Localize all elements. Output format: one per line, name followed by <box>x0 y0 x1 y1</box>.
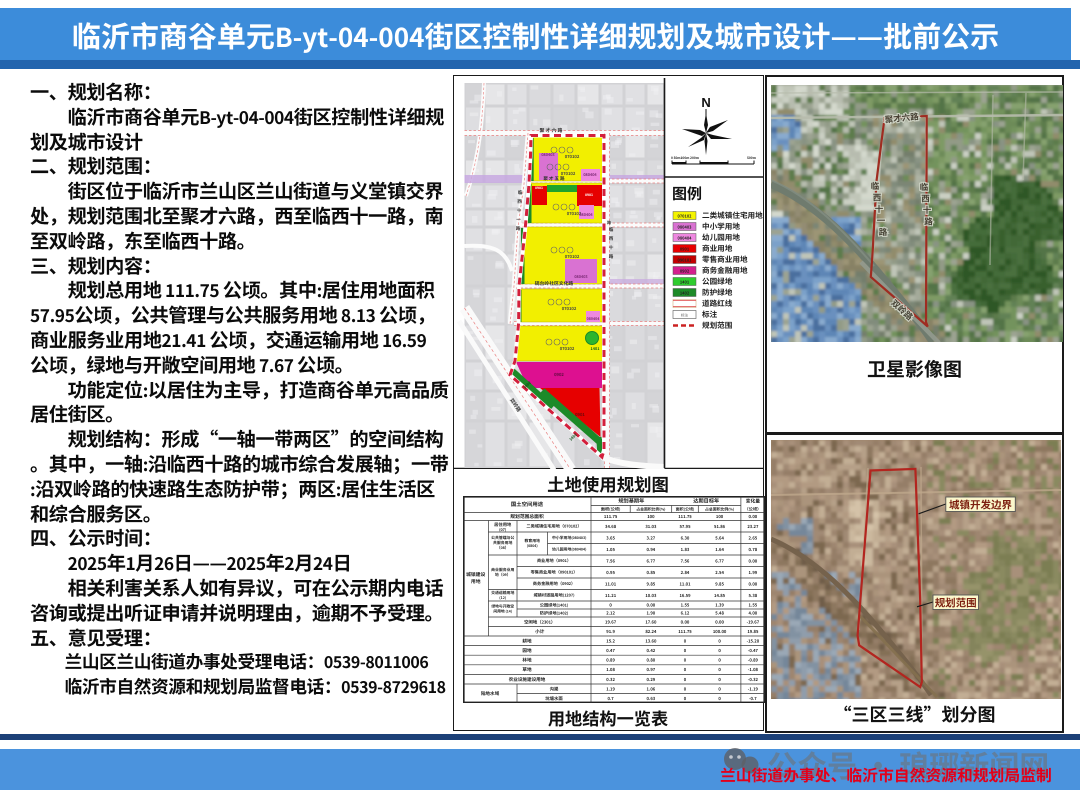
svg-text:国土空间用途: 国土空间用途 <box>511 501 544 508</box>
svg-text:0.00: 0.00 <box>681 619 690 625</box>
svg-text:070102: 070102 <box>677 214 692 220</box>
svg-text:二类城镇住宅用地: 二类城镇住宅用地 <box>702 210 763 220</box>
svg-text:防护绿地: 防护绿地 <box>702 287 733 297</box>
svg-text:1401: 1401 <box>679 280 689 286</box>
svg-text:10.03: 10.03 <box>645 593 657 599</box>
svg-text:0.00: 0.00 <box>715 619 724 625</box>
svg-text:0902: 0902 <box>679 269 689 275</box>
svg-text:090101: 090101 <box>677 258 692 264</box>
svg-text:幼儿园用地: 幼儿园用地 <box>702 232 740 242</box>
svg-text:2.12: 2.12 <box>606 611 615 617</box>
svg-text:间用地 (14): 间用地 (14) <box>493 608 512 613</box>
svg-text:十: 十 <box>608 245 613 251</box>
svg-text:1401: 1401 <box>590 347 599 352</box>
svg-text:1.19: 1.19 <box>606 686 615 692</box>
svg-text:91.9: 91.9 <box>606 629 615 635</box>
svg-text:100: 100 <box>716 514 724 520</box>
svg-text:11.01: 11.01 <box>679 581 691 587</box>
svg-text:51.86: 51.86 <box>714 524 726 530</box>
svg-text:临: 临 <box>608 227 613 233</box>
svg-text:34.68: 34.68 <box>605 524 617 530</box>
svg-text:1.99: 1.99 <box>749 570 758 576</box>
svg-text:农业设施建设用地: 农业设施建设用地 <box>509 677 546 683</box>
svg-text:商务金融用地: 商务金融用地 <box>702 265 748 275</box>
svg-text:0.00: 0.00 <box>647 603 656 609</box>
svg-text:1.08: 1.08 <box>606 667 615 673</box>
svg-text:耕地: 耕地 <box>522 638 532 644</box>
svg-text:-0.47: -0.47 <box>748 648 759 654</box>
svg-text:0.94: 0.94 <box>647 547 656 553</box>
svg-text:-1.19: -1.19 <box>748 686 759 692</box>
svg-text:1.55: 1.55 <box>749 603 758 609</box>
svg-text:防护绿地(1402): 防护绿地(1402) <box>540 610 569 616</box>
svg-text:-1.08: -1.08 <box>748 667 759 673</box>
svg-text:0.80: 0.80 <box>647 658 656 664</box>
svg-text:聚 才 五 路: 聚 才 五 路 <box>543 176 565 182</box>
svg-text:13.60: 13.60 <box>645 638 657 644</box>
svg-text:070102: 070102 <box>561 306 576 312</box>
svg-text:0.42: 0.42 <box>647 648 656 654</box>
svg-text:空闲地（2301）: 空闲地（2301） <box>524 619 555 625</box>
svg-text:080403: 080403 <box>541 153 554 158</box>
svg-text:6.30: 6.30 <box>681 535 690 541</box>
svg-text:标注: 标注 <box>680 312 688 317</box>
svg-text:(12): (12) <box>499 596 506 601</box>
svg-text:100.00: 100.00 <box>713 629 727 635</box>
svg-text:(0804): (0804) <box>527 544 539 549</box>
svg-text:规划范围: 规划范围 <box>702 320 733 330</box>
svg-text:小计: 小计 <box>535 629 545 635</box>
svg-text:草地: 草地 <box>522 667 532 673</box>
svg-text:聚 才 六 路: 聚 才 六 路 <box>539 127 562 134</box>
svg-text:11.01: 11.01 <box>605 581 617 587</box>
svg-text:100: 100 <box>647 514 655 520</box>
svg-text:变化量: 变化量 <box>746 497 761 504</box>
svg-text:080403: 080403 <box>574 275 587 280</box>
svg-text:达期目标年: 达期目标年 <box>693 498 719 505</box>
svg-text:6.77: 6.77 <box>715 558 724 564</box>
svg-text:标注: 标注 <box>702 309 718 319</box>
svg-text:园地: 园地 <box>522 648 532 654</box>
svg-text:5.38: 5.38 <box>749 593 758 599</box>
svg-text:（08）: （08） <box>497 545 509 551</box>
svg-text:111.75: 111.75 <box>678 629 692 635</box>
svg-text:商业用地（0901）: 商业用地（0901） <box>537 558 571 564</box>
svg-text:面积(公顷): 面积(公顷) <box>601 506 621 512</box>
svg-text:占总面积比例(%): 占总面积比例(%) <box>705 506 735 512</box>
svg-text:十: 十 <box>516 208 521 214</box>
svg-text:31.03: 31.03 <box>645 524 657 530</box>
svg-text:0901: 0901 <box>679 247 689 253</box>
svg-text:1.64: 1.64 <box>715 547 724 553</box>
svg-text:5.64: 5.64 <box>715 535 724 541</box>
svg-text:幼儿园用地(080404): 幼儿园用地(080404) <box>552 547 587 553</box>
svg-text:城镇建设: 城镇建设 <box>466 571 485 578</box>
svg-text:N: N <box>701 95 710 110</box>
svg-text:一: 一 <box>516 217 521 223</box>
svg-text:（公顷）: （公顷） <box>745 506 762 512</box>
svg-text:中小学用地(080403): 中小学用地(080403) <box>552 535 587 541</box>
svg-text:15.2: 15.2 <box>606 638 615 644</box>
svg-text:城镇村道路用地(1207): 城镇村道路用地(1207) <box>533 593 575 599</box>
svg-text:23.27: 23.27 <box>747 524 759 530</box>
svg-text:0.97: 0.97 <box>647 667 656 673</box>
svg-text:0 50m100m 200m: 0 50m100m 200m <box>671 155 699 160</box>
svg-text:0.00: 0.00 <box>749 514 758 520</box>
svg-text:规划基期年: 规划基期年 <box>618 498 644 505</box>
svg-text:1402: 1402 <box>679 291 689 297</box>
svg-text:0.78: 0.78 <box>749 547 758 553</box>
svg-text:0.29: 0.29 <box>647 677 656 683</box>
svg-text:路: 路 <box>607 220 611 226</box>
svg-text:111.75: 111.75 <box>604 514 618 520</box>
svg-text:西: 西 <box>517 199 522 205</box>
svg-text:6.77: 6.77 <box>647 558 656 564</box>
svg-text:占总面积比例(%): 占总面积比例(%) <box>636 506 666 512</box>
svg-text:0.00: 0.00 <box>749 558 758 564</box>
svg-text:070102: 070102 <box>559 346 574 352</box>
svg-text:陆地水域: 陆地水域 <box>481 691 500 697</box>
svg-text:3.65: 3.65 <box>606 535 615 541</box>
svg-text:9.85: 9.85 <box>715 581 724 587</box>
svg-text:坑塘水面: 坑塘水面 <box>545 696 563 702</box>
svg-text:080403: 080403 <box>677 225 692 231</box>
svg-text:6.12: 6.12 <box>681 611 690 617</box>
svg-text:11.21: 11.21 <box>605 593 617 599</box>
svg-text:111.75: 111.75 <box>678 514 692 520</box>
svg-text:16.59: 16.59 <box>679 593 691 599</box>
svg-text:080404: 080404 <box>586 317 600 322</box>
svg-text:路: 路 <box>515 226 520 232</box>
svg-text:零售商业用地（090101）: 零售商业用地（090101） <box>531 570 578 576</box>
svg-text:用地: 用地 <box>471 578 481 585</box>
svg-text:3.27: 3.27 <box>647 535 656 541</box>
svg-text:-0.89: -0.89 <box>748 658 759 664</box>
svg-text:57.95: 57.95 <box>679 524 691 530</box>
svg-text:14.85: 14.85 <box>714 593 726 599</box>
svg-text:080404: 080404 <box>579 213 593 218</box>
svg-text:0.7: 0.7 <box>607 696 614 702</box>
svg-text:0901: 0901 <box>584 192 592 197</box>
svg-text:070102: 070102 <box>564 254 579 260</box>
svg-text:-0.32: -0.32 <box>748 677 759 683</box>
svg-text:19.85: 19.85 <box>747 629 759 635</box>
svg-text:规划范围总面积: 规划范围总面积 <box>510 513 544 520</box>
svg-text:二类城镇住宅用地（070102）: 二类城镇住宅用地（070102） <box>526 524 581 530</box>
svg-text:商业用地: 商业用地 <box>702 243 733 253</box>
svg-text:7.56: 7.56 <box>606 558 615 564</box>
svg-text:1.05: 1.05 <box>606 547 615 553</box>
svg-text:地（09）: 地（09） <box>495 572 511 578</box>
svg-text:1.06: 1.06 <box>647 686 656 692</box>
svg-text:-0.7: -0.7 <box>749 696 757 702</box>
svg-text:82.24: 82.24 <box>645 629 657 635</box>
svg-text:1.90: 1.90 <box>647 611 656 617</box>
svg-text:9.85: 9.85 <box>647 581 656 587</box>
svg-text:2.65: 2.65 <box>749 535 758 541</box>
svg-text:4.00: 4.00 <box>749 611 758 617</box>
svg-text:西: 西 <box>608 236 613 242</box>
svg-text:2.84: 2.84 <box>681 570 690 576</box>
svg-text:路: 路 <box>608 254 613 260</box>
svg-text:080404: 080404 <box>677 236 692 242</box>
svg-text:林地: 林地 <box>522 658 532 664</box>
svg-text:0.47: 0.47 <box>606 648 615 654</box>
svg-text:19.67: 19.67 <box>605 619 617 625</box>
svg-text:面积(公顷): 面积(公顷) <box>676 506 695 512</box>
svg-text:0901: 0901 <box>575 412 585 418</box>
svg-text:2.54: 2.54 <box>715 570 724 576</box>
svg-text:城镇开发边界: 城镇开发边界 <box>949 498 1012 512</box>
svg-text:1.83: 1.83 <box>681 547 690 553</box>
svg-text:公园绿地(1401): 公园绿地(1401) <box>540 602 569 608</box>
svg-text:-15.20: -15.20 <box>747 638 760 644</box>
svg-text:规划范围: 规划范围 <box>935 596 977 610</box>
svg-text:5.48: 5.48 <box>715 611 724 617</box>
svg-text:0.32: 0.32 <box>606 677 615 683</box>
svg-text:7.56: 7.56 <box>681 558 690 564</box>
svg-text:0.89: 0.89 <box>606 658 615 664</box>
svg-text:080404: 080404 <box>583 173 597 178</box>
svg-text:0.63: 0.63 <box>647 696 656 702</box>
svg-text:1.39: 1.39 <box>715 603 724 609</box>
svg-text:沟渠: 沟渠 <box>550 686 559 692</box>
svg-text:道路红线: 道路红线 <box>702 298 733 308</box>
svg-text:1.55: 1.55 <box>681 603 690 609</box>
svg-text:0901: 0901 <box>534 185 542 190</box>
svg-text:0902: 0902 <box>554 372 564 378</box>
svg-text:(07): (07) <box>499 527 507 533</box>
svg-text:0.00: 0.00 <box>749 581 758 587</box>
svg-text:500m: 500m <box>747 155 756 160</box>
svg-text:0.85: 0.85 <box>647 570 656 576</box>
svg-text:17.60: 17.60 <box>645 619 657 625</box>
svg-text:图例: 图例 <box>672 183 702 203</box>
svg-text:临: 临 <box>517 190 522 196</box>
svg-text:商务金融用地（0902）: 商务金融用地（0902） <box>533 581 575 587</box>
svg-text:零售商业用地: 零售商业用地 <box>702 254 748 264</box>
svg-text:0.95: 0.95 <box>606 570 615 576</box>
svg-text:中小学用地: 中小学用地 <box>702 221 740 231</box>
svg-text:公园绿地: 公园绿地 <box>702 276 733 286</box>
svg-text:砚台岭社区文化路: 砚台岭社区文化路 <box>534 280 573 287</box>
svg-text:070102: 070102 <box>564 154 579 160</box>
svg-text:-19.67: -19.67 <box>747 619 760 625</box>
